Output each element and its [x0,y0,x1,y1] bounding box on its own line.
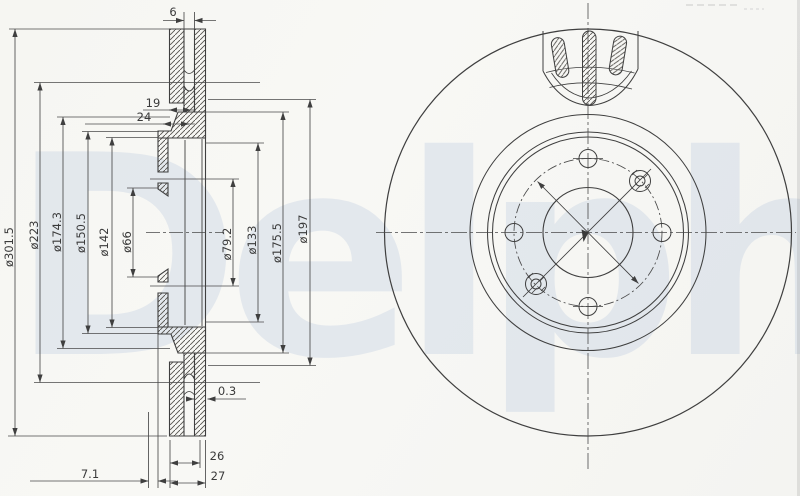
scan-artifacts [686,5,764,9]
dim-26: 26 [210,449,225,463]
dim-o301-5: ø301.5 [2,227,16,267]
front-view [376,3,796,470]
dim-o142: ø142 [97,228,111,257]
dim-o197: ø197 [296,215,310,244]
dim-o175-5: ø175.5 [270,223,284,263]
dim-6: 6 [169,5,176,19]
dimension-labels: ø301.5 ø223 ø174.3 ø150.5 ø142 ø66 ø79.2… [2,5,310,483]
dim-7-1: 7.1 [81,467,99,481]
technical-drawing-page: Delphi [0,0,800,496]
dim-o174-3: ø174.3 [50,212,64,252]
vane-slot-center [583,31,597,105]
dim-0-3: 0.3 [218,384,236,398]
vane-section-detail [543,31,638,106]
vane-slot-left [550,37,569,79]
dim-o66: ø66 [120,231,134,253]
section-hatch-lower [158,269,206,436]
section-hatch-upper [158,29,206,196]
dim-o79-2: ø79.2 [220,228,234,261]
dim-19: 19 [146,96,161,110]
dim-o223: ø223 [27,221,41,250]
dim-27: 27 [211,469,226,483]
section-dimensions: ø301.5 ø223 ø174.3 ø150.5 ø142 ø66 ø79.2… [2,5,316,488]
vane-slot-right [608,35,627,76]
brake-disc-technical-drawing: ø301.5 ø223 ø174.3 ø150.5 ø142 ø66 ø79.2… [0,0,800,496]
dim-o133: ø133 [245,226,259,255]
dim-o150-5: ø150.5 [74,213,88,253]
dim-24: 24 [137,110,152,124]
